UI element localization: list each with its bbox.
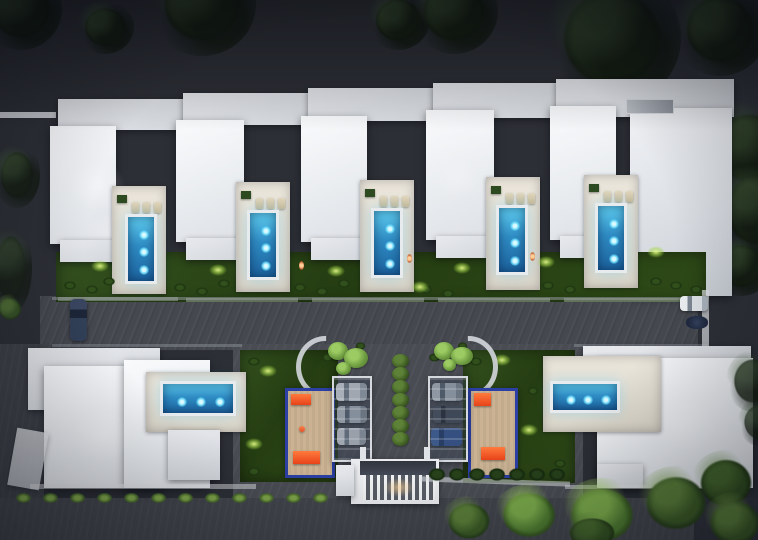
garden-plant xyxy=(648,276,664,287)
tree xyxy=(76,0,134,54)
garden-plant xyxy=(216,278,232,289)
garden-plant xyxy=(84,284,100,295)
tree xyxy=(492,484,566,540)
topiary xyxy=(443,359,456,371)
gate-post xyxy=(424,447,430,460)
hedge xyxy=(0,142,40,208)
sun-lounger xyxy=(278,198,285,209)
pool-light xyxy=(261,261,271,271)
tree xyxy=(148,0,256,56)
lawn-light xyxy=(450,260,474,276)
median-bush xyxy=(392,419,409,433)
roof-light-spot xyxy=(428,150,488,208)
swimming-pool xyxy=(247,210,279,280)
pool-light xyxy=(385,224,395,234)
play-bench xyxy=(481,447,505,460)
patio-planter xyxy=(365,189,375,197)
curb xyxy=(52,297,708,300)
sun-lounger xyxy=(267,198,274,209)
pool-light xyxy=(177,397,187,407)
tree xyxy=(410,0,498,54)
shrub xyxy=(283,491,304,505)
hedge-plant xyxy=(446,466,468,483)
pool-light xyxy=(261,243,271,253)
bollard-light xyxy=(530,252,535,261)
swimming-pool xyxy=(160,381,236,416)
boundary-wall xyxy=(0,112,56,118)
tree xyxy=(440,496,498,540)
play-bench xyxy=(474,393,491,406)
garden-plant xyxy=(562,284,578,295)
garden-plant xyxy=(668,280,684,291)
sun-lounger xyxy=(143,202,150,213)
shrub xyxy=(229,491,250,505)
hedge-plant xyxy=(526,466,548,483)
shrub xyxy=(67,491,88,505)
lawn-light xyxy=(206,262,230,278)
sun-lounger xyxy=(626,191,633,202)
shrub xyxy=(94,491,115,505)
pool-light xyxy=(510,256,520,266)
roof-light-spot xyxy=(58,400,146,472)
play-item xyxy=(299,426,305,432)
garden-plant xyxy=(540,280,556,291)
lawn-light xyxy=(517,422,541,438)
garden-plant xyxy=(246,356,262,367)
swimming-pool xyxy=(371,208,403,278)
villa-step-roof xyxy=(311,238,367,260)
pool-light xyxy=(261,226,271,236)
sun-lounger xyxy=(604,191,611,202)
shrub xyxy=(310,491,331,505)
carport-canopy xyxy=(332,376,372,462)
pool-light xyxy=(583,395,593,405)
shrub xyxy=(121,491,142,505)
pool-light xyxy=(385,241,395,251)
curb xyxy=(52,344,242,347)
pool-light xyxy=(609,219,619,229)
villa-step-roof xyxy=(60,240,116,262)
swimming-pool xyxy=(125,214,157,284)
median-bush xyxy=(392,367,409,381)
sun-lounger xyxy=(528,193,535,204)
sun-lounger xyxy=(154,202,161,213)
hedge-plant xyxy=(506,466,528,483)
garden-plant xyxy=(336,278,352,289)
pool-light xyxy=(510,221,520,231)
street-road xyxy=(40,296,712,350)
median-bush xyxy=(392,432,409,446)
median-bush xyxy=(392,406,409,420)
shrub xyxy=(256,491,277,505)
lawn-light xyxy=(534,254,558,270)
tree xyxy=(672,0,758,76)
sun-lounger xyxy=(506,193,513,204)
villa-compound-aerial-render xyxy=(0,0,758,540)
bollard-light xyxy=(407,254,412,263)
pool-light xyxy=(139,265,149,275)
sun-lounger xyxy=(391,196,398,207)
median-bush xyxy=(392,380,409,394)
gate-booth xyxy=(336,465,354,496)
garden-plant xyxy=(194,286,210,297)
garden-plant xyxy=(314,286,330,297)
hedge-plant xyxy=(426,466,448,483)
shrub xyxy=(13,491,34,505)
gate-post xyxy=(360,447,366,460)
lawn-light xyxy=(644,244,668,260)
villa-roof-main xyxy=(301,116,367,242)
play-bench xyxy=(293,451,320,464)
shrub xyxy=(40,491,61,505)
pool-light xyxy=(139,230,149,240)
carport-canopy xyxy=(428,376,468,462)
villa-roof-main xyxy=(176,120,244,242)
garden-plant xyxy=(101,276,117,287)
sun-lounger xyxy=(132,202,139,213)
patio-planter xyxy=(241,191,251,199)
pool-light xyxy=(215,397,225,407)
pool-light xyxy=(566,395,576,405)
garden-plant xyxy=(292,282,308,293)
bollard-light xyxy=(299,261,304,270)
pool-light xyxy=(609,254,619,264)
swimming-pool xyxy=(550,381,620,413)
hedge xyxy=(0,294,26,324)
topiary xyxy=(336,362,351,375)
hedge-plant xyxy=(466,466,488,483)
gate-canopy xyxy=(360,461,436,475)
sun-lounger xyxy=(380,196,387,207)
garden-plant xyxy=(246,466,262,477)
sun-lounger xyxy=(402,196,409,207)
pool-light xyxy=(139,247,149,257)
lawn-light xyxy=(324,263,348,279)
hedge-plant xyxy=(546,466,568,483)
pool-light xyxy=(601,395,611,405)
lawn-light xyxy=(408,279,432,295)
shrub xyxy=(202,491,223,505)
roof-panel xyxy=(626,99,674,114)
gate-light xyxy=(378,475,420,500)
lawn-light xyxy=(88,258,112,274)
villa-deck xyxy=(168,430,220,480)
garden-plant xyxy=(62,280,78,291)
shrub xyxy=(175,491,196,505)
street-object xyxy=(686,316,708,329)
pool-light xyxy=(609,236,619,246)
shrub xyxy=(148,491,169,505)
garden-plant xyxy=(172,282,188,293)
median-bush xyxy=(392,354,409,368)
sun-lounger xyxy=(517,193,524,204)
parked-car xyxy=(680,296,708,311)
sun-lounger xyxy=(256,198,263,209)
patio-planter xyxy=(491,186,501,194)
patio-planter xyxy=(117,195,127,203)
patio-planter xyxy=(589,184,599,192)
pool-light xyxy=(385,259,395,269)
swimming-pool xyxy=(496,205,528,275)
sun-lounger xyxy=(615,191,622,202)
tree xyxy=(0,0,62,50)
median-bush xyxy=(392,393,409,407)
parked-car xyxy=(70,299,87,341)
play-bench xyxy=(291,394,311,405)
garden-wall xyxy=(30,484,256,489)
lawn-light xyxy=(242,436,266,452)
swimming-pool xyxy=(595,203,627,273)
hedge-plant xyxy=(486,466,508,483)
pool-light xyxy=(196,397,206,407)
pool-light xyxy=(510,238,520,248)
garden-plant xyxy=(526,386,540,396)
